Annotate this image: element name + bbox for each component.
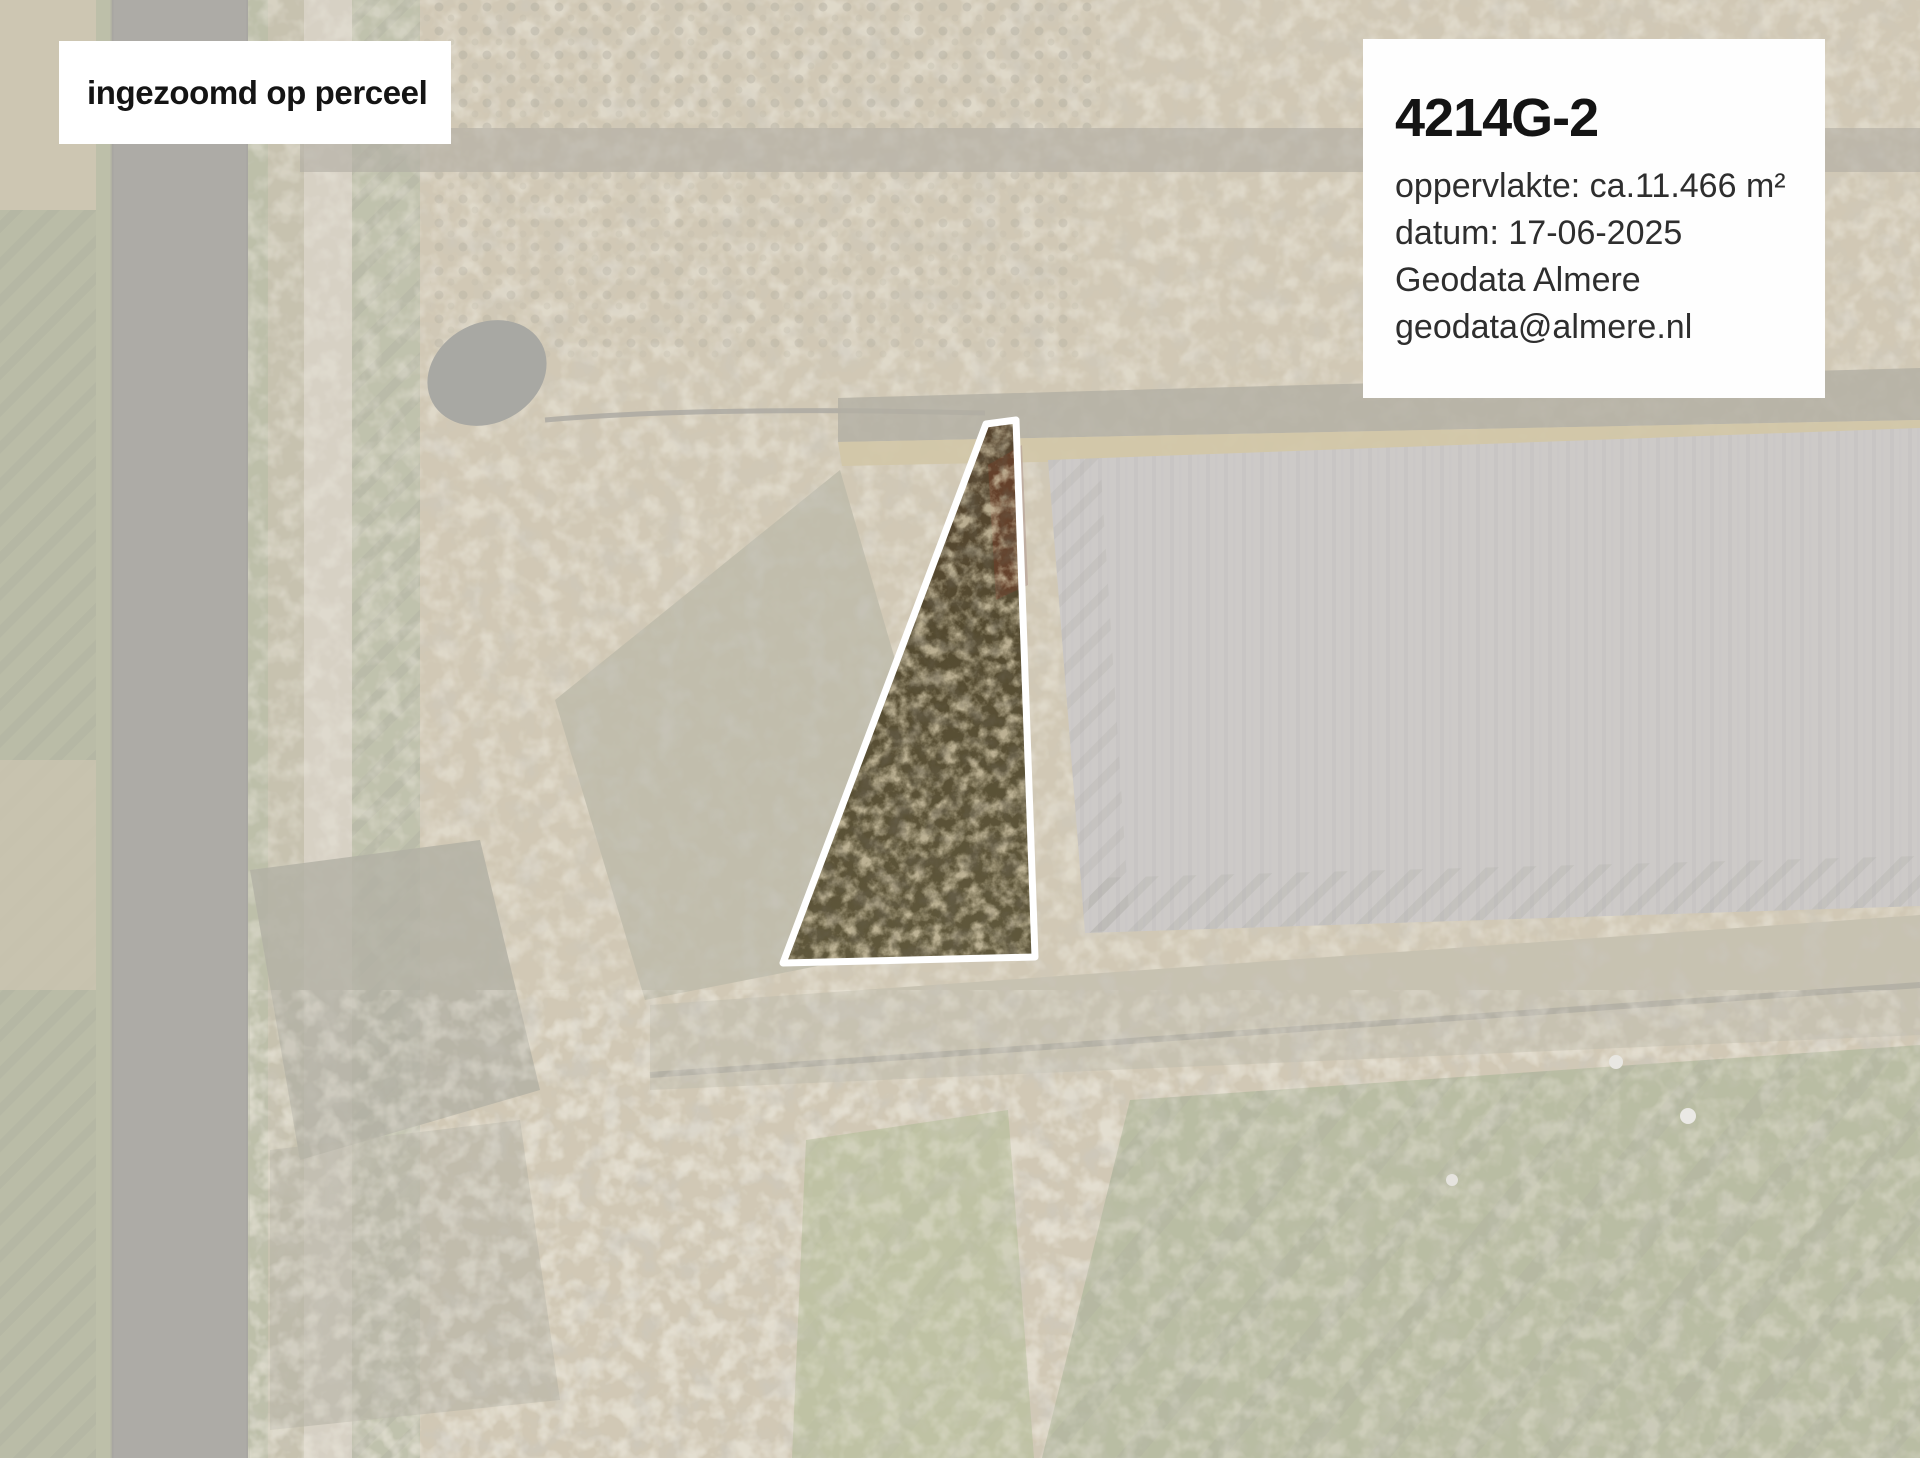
aerial-map-page: ingezoomd op perceel 4214G-2 oppervlakte… [0,0,1920,1458]
info-line-organisatie: Geodata Almere [1395,257,1795,304]
parcel-info-card: 4214G-2 oppervlakte: ca.11.466 m² datum:… [1363,39,1825,398]
info-line-email: geodata@almere.nl [1395,304,1795,351]
parcel-id-title: 4214G-2 [1395,89,1795,147]
info-line-oppervlakte: oppervlakte: ca.11.466 m² [1395,163,1795,210]
map-caption-box: ingezoomd op perceel [59,41,451,144]
info-line-datum: datum: 17-06-2025 [1395,210,1795,257]
map-caption-text: ingezoomd op perceel [87,74,427,112]
